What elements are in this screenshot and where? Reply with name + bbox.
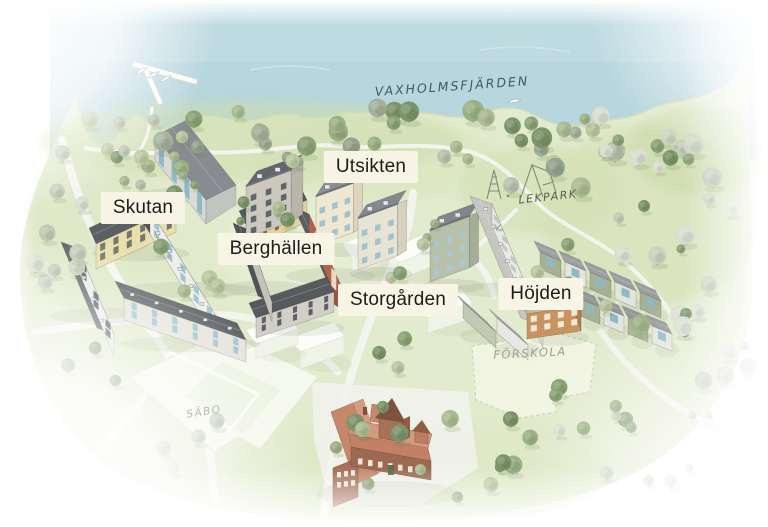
district-label-skutan[interactable]: Skutan xyxy=(101,192,185,224)
sabo-label: SÄBO xyxy=(186,403,223,420)
district-label-utsikten[interactable]: Utsikten xyxy=(324,151,418,183)
water-name-label: VAXHOLMSFJÄRDEN xyxy=(374,73,529,99)
map-canvas: VAXHOLMSFJÄRDEN LEKPARK FÖRSKOLA SÄBO Sk… xyxy=(0,0,768,527)
district-label-hojden[interactable]: Höjden xyxy=(498,278,583,310)
district-label-storgarden[interactable]: Storgården xyxy=(338,284,458,316)
forskola-label: FÖRSKOLA xyxy=(493,344,567,362)
lekpark-label: LEKPARK xyxy=(518,187,578,206)
district-label-berghallen[interactable]: Berghällen xyxy=(218,233,335,265)
label-layer: VAXHOLMSFJÄRDEN LEKPARK FÖRSKOLA SÄBO Sk… xyxy=(0,0,768,527)
